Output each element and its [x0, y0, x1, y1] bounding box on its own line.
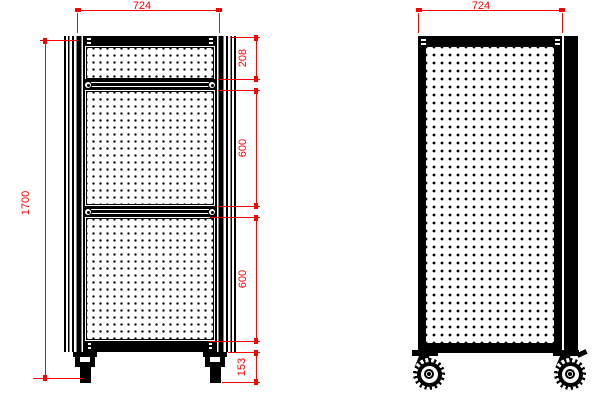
wheel-axle: [568, 372, 572, 376]
bracket-notch: [209, 38, 213, 40]
dim-label-front-width: 724: [122, 0, 162, 12]
dimension-tick: [254, 350, 258, 356]
drawing-canvas: 724 1700 208 600 600: [0, 0, 613, 405]
extension-line: [33, 378, 83, 379]
dimension-line: [256, 352, 257, 382]
bracket-notch: [87, 38, 91, 40]
wheel-axle: [427, 372, 431, 376]
front-panel-middle: [86, 91, 214, 205]
bracket-notch: [555, 39, 560, 41]
caster-wheel-edge: [210, 362, 221, 383]
extension-line: [77, 13, 78, 33]
front-top-bar: [85, 36, 215, 46]
dim-label-600-lower: 600: [237, 266, 249, 292]
dimension-tick: [254, 338, 258, 344]
bracket-notch: [209, 343, 212, 345]
dimension-tick: [43, 38, 47, 44]
dimension-line: [256, 217, 257, 341]
bracket-notch: [421, 39, 426, 41]
bracket-notch: [555, 43, 560, 45]
dimension-tick: [254, 203, 258, 209]
dim-label-front-height: 1700: [20, 185, 32, 221]
dim-label-600-upper: 600: [237, 135, 249, 161]
bracket-notch: [87, 42, 91, 44]
dim-label-208: 208: [237, 45, 249, 71]
dimension-tick: [254, 76, 258, 82]
dimension-tick: [416, 8, 422, 12]
dimension-tick: [254, 215, 258, 221]
connector-joint: [208, 81, 216, 89]
dim-label-153: 153: [236, 354, 248, 380]
side-rear-post: [564, 36, 578, 353]
dimension-line: [45, 40, 46, 378]
front-bottom-bar: [85, 341, 215, 352]
front-crossbar-1: [85, 79, 215, 90]
front-panel-bottom: [86, 218, 214, 340]
front-crossbar-2: [85, 206, 215, 217]
front-right-post: [215, 36, 236, 352]
front-left-post: [64, 36, 85, 352]
extension-line: [219, 13, 220, 33]
dimension-tick: [559, 8, 565, 12]
front-panel-top: [86, 47, 214, 79]
connector-joint: [84, 81, 92, 89]
side-panel-perforation: [426, 47, 554, 343]
extension-line: [418, 13, 419, 33]
bracket-notch: [88, 343, 91, 345]
connector-joint: [208, 208, 216, 216]
dimension-tick: [75, 8, 81, 12]
dimension-line: [256, 90, 257, 206]
side-view: [306, 0, 613, 405]
dim-label-side-width: 724: [461, 0, 501, 12]
dimension-tick: [254, 379, 258, 385]
bracket-notch: [209, 347, 212, 349]
bracket-notch: [209, 42, 213, 44]
extension-line: [210, 217, 260, 218]
connector-joint: [84, 208, 92, 216]
extension-line: [562, 13, 563, 33]
dimension-tick: [254, 88, 258, 94]
caster-wheel: [554, 358, 586, 390]
bracket-notch: [88, 347, 91, 349]
extension-line: [210, 341, 260, 342]
dimension-tick: [43, 375, 47, 381]
caster-wheel: [413, 358, 445, 390]
dimension-tick: [254, 35, 258, 41]
dimension-line: [256, 37, 257, 79]
bracket-notch: [421, 43, 426, 45]
caster-wheel-edge: [80, 362, 91, 383]
dimension-tick: [216, 8, 222, 12]
